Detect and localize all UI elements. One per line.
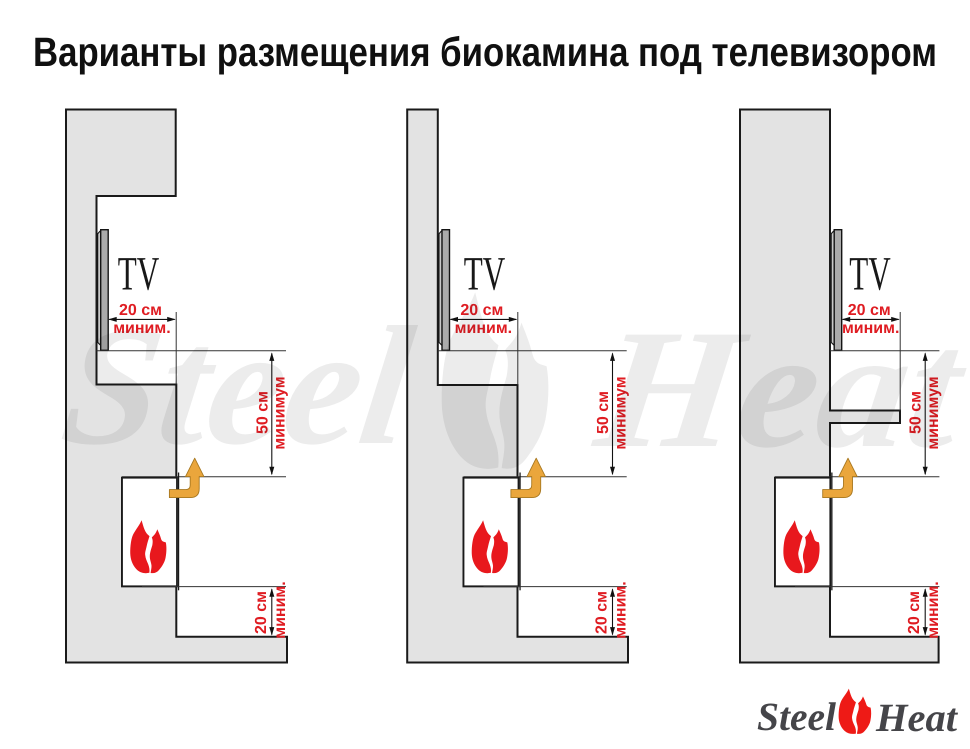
svg-text:TV: TV: [849, 247, 891, 300]
svg-text:миним.: миним.: [925, 581, 942, 638]
svg-text:20 см: 20 см: [594, 591, 611, 634]
svg-text:Steel: Steel: [757, 694, 837, 739]
svg-text:миним.: миним.: [272, 581, 289, 638]
svg-text:Варианты размещения биокамина: Варианты размещения биокамина под телеви…: [33, 29, 937, 75]
svg-text:TV: TV: [464, 247, 506, 300]
svg-text:20 см: 20 см: [253, 591, 270, 634]
svg-text:Heat: Heat: [875, 695, 959, 740]
svg-text:Steel: Steel: [53, 292, 422, 480]
svg-text:миним.: миним.: [613, 581, 630, 638]
svg-text:20 см: 20 см: [906, 591, 923, 634]
svg-text:Heat: Heat: [585, 295, 970, 483]
